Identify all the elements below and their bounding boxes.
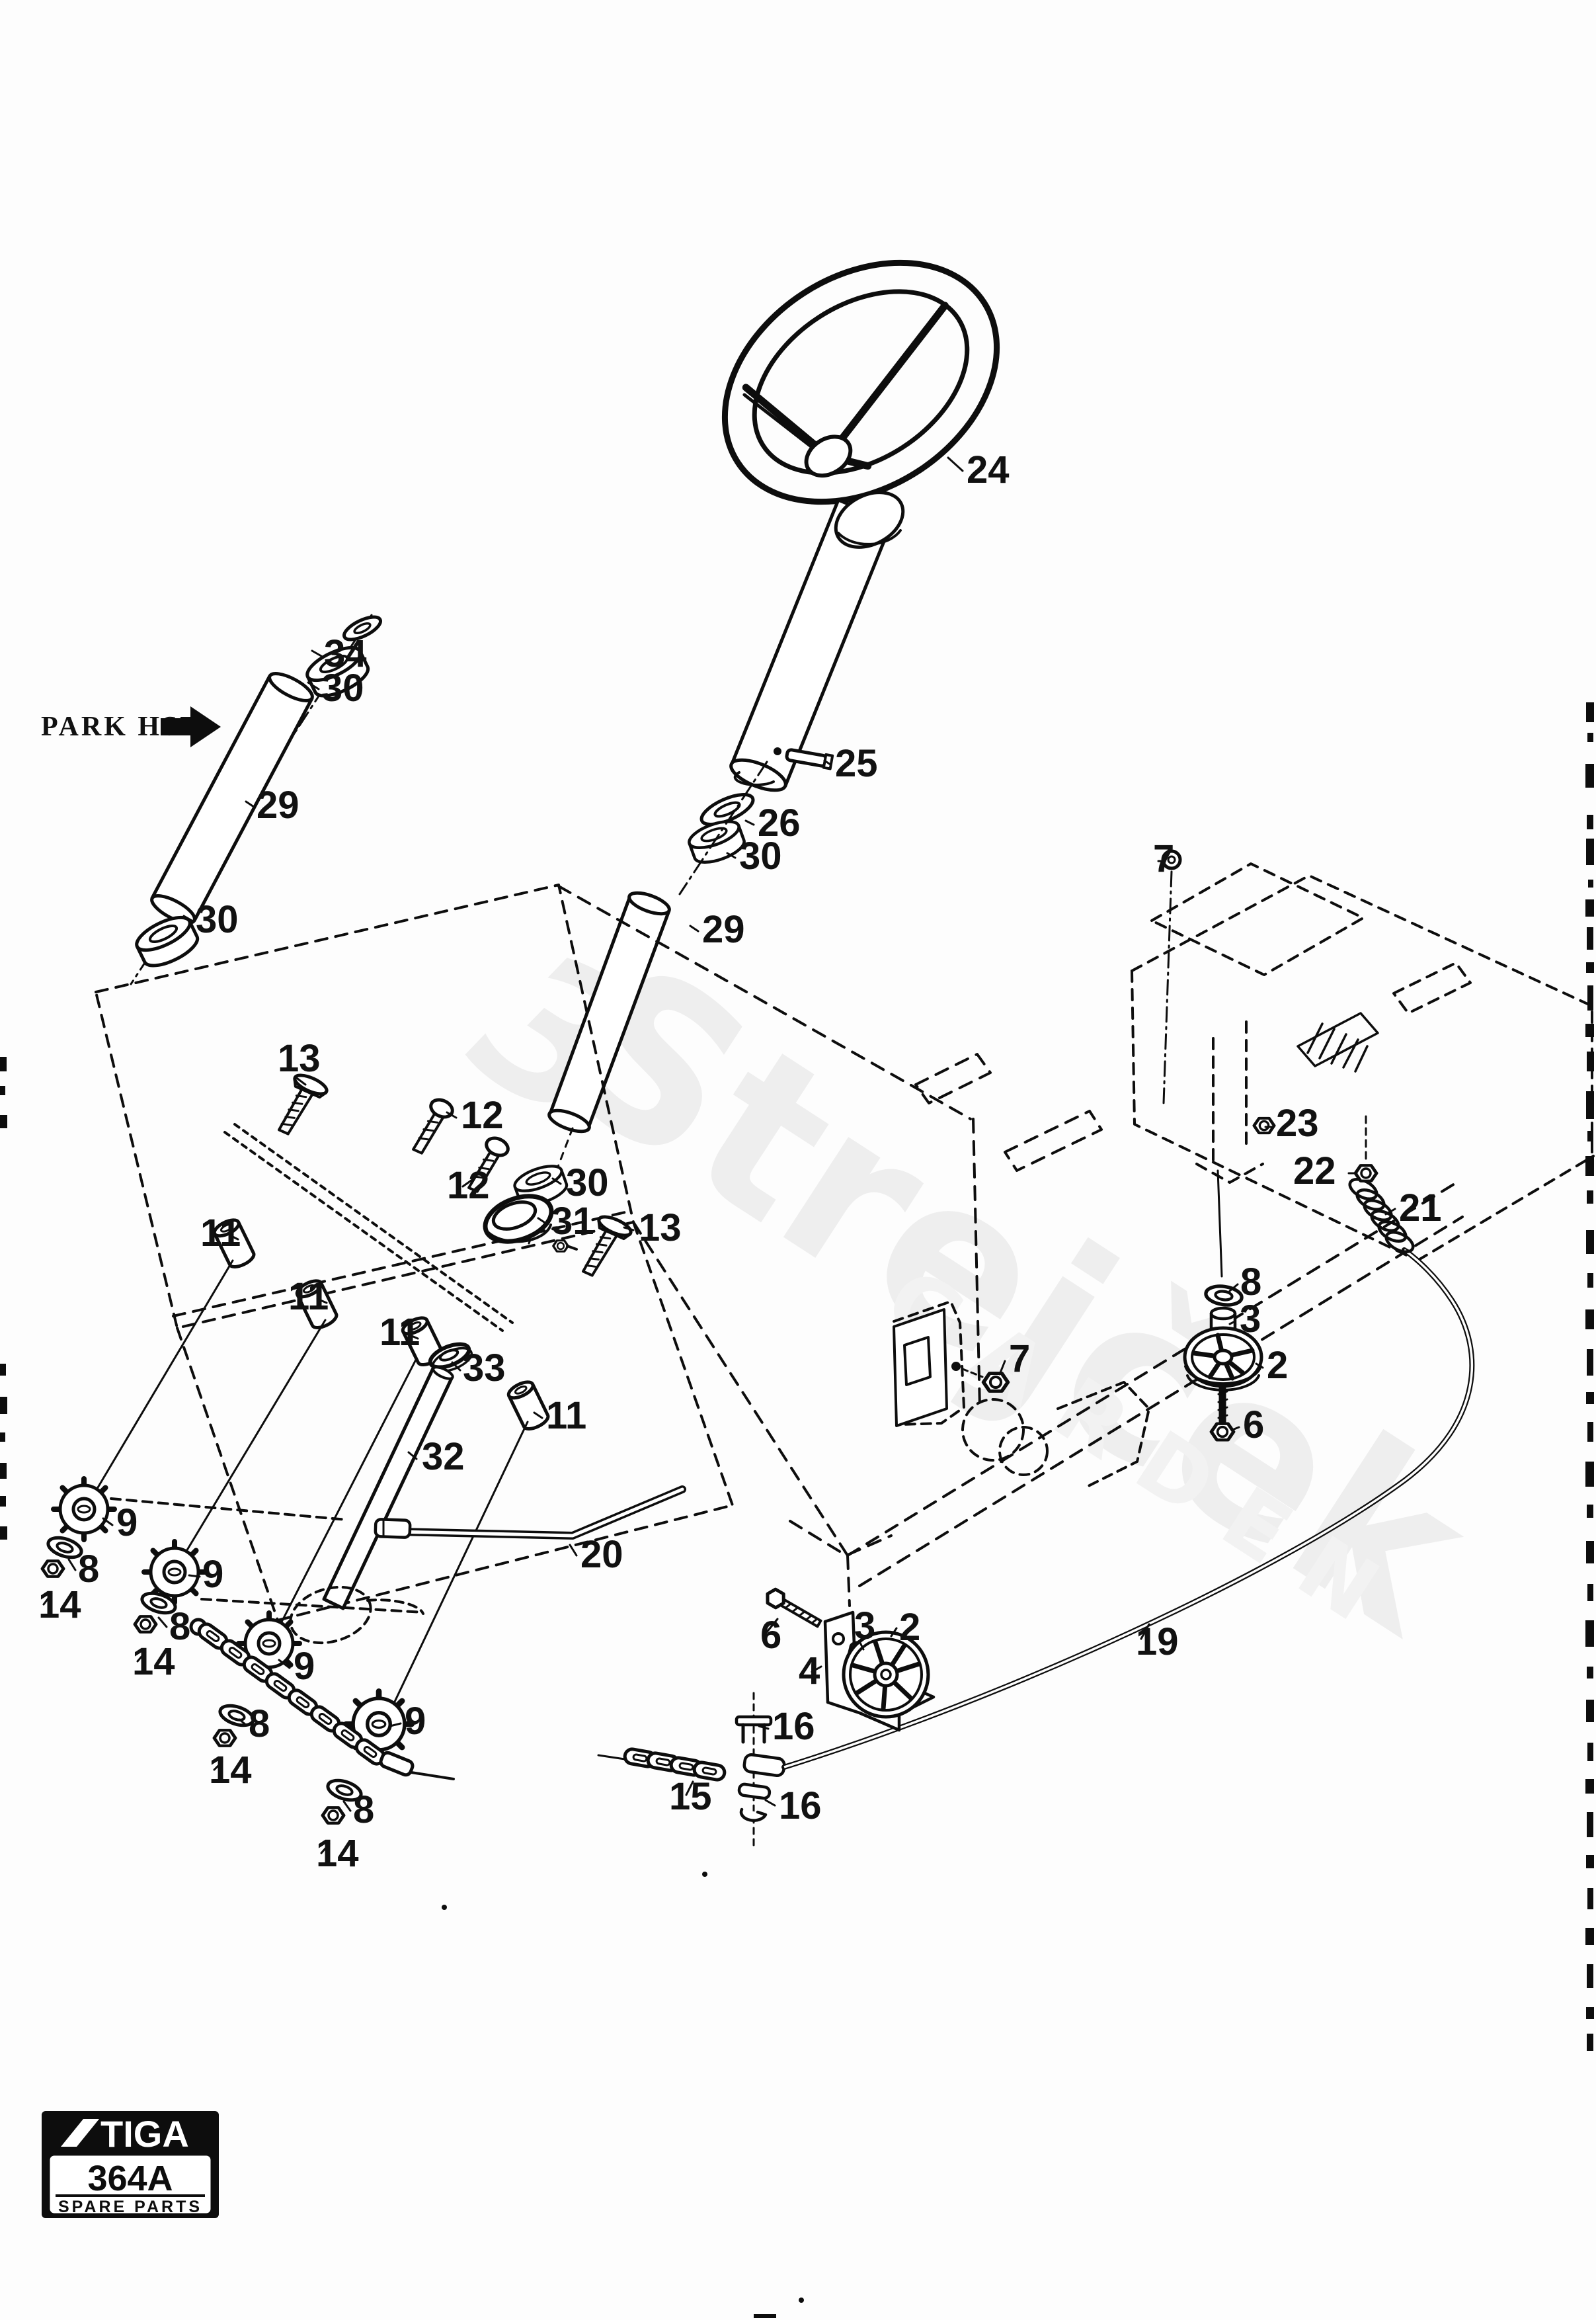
part-label-13: 13 — [639, 1206, 682, 1249]
part-label-12: 12 — [461, 1094, 504, 1137]
part-label-7: 7 — [1009, 1337, 1030, 1380]
part-label-8: 8 — [249, 1702, 270, 1745]
part-label-12: 12 — [447, 1164, 490, 1207]
part-label-31: 31 — [551, 1200, 594, 1243]
part-label-14: 14 — [38, 1583, 81, 1626]
part-label-23: 23 — [1276, 1102, 1319, 1145]
part-label-9: 9 — [294, 1645, 315, 1688]
part-label-24: 24 — [967, 448, 1010, 491]
part-label-9: 9 — [405, 1700, 426, 1743]
park-hst-note: PARK HST — [41, 706, 221, 747]
part-cable-adjuster — [743, 1754, 785, 1776]
part-screw-7-frame — [1163, 851, 1180, 1103]
part-nut-14-d — [323, 1807, 344, 1823]
logo-block: TIGA 364A SPARE PARTS — [42, 2111, 219, 2218]
part-label-9: 9 — [116, 1501, 138, 1544]
part-label-2: 2 — [1267, 1344, 1288, 1387]
part-label-29: 29 — [257, 784, 299, 827]
part-nut-14-b — [135, 1616, 156, 1632]
part-rod-32 — [324, 1365, 454, 1608]
logo-brand: TIGA — [100, 2113, 189, 2155]
part-label-7: 7 — [1153, 837, 1174, 880]
logo-model: 364A — [87, 2159, 173, 2198]
rear-frame-outline — [1132, 864, 1593, 1261]
part-label-8: 8 — [353, 1788, 374, 1831]
part-bearing-30-column — [686, 816, 748, 868]
part-nut-7-seat — [984, 1374, 1008, 1391]
part-nut-22 — [1355, 1165, 1377, 1181]
spare-parts-page: 3 Strejček GARDEN — [0, 0, 1596, 2320]
part-label-3: 3 — [854, 1604, 875, 1647]
part-label-16: 16 — [772, 1705, 815, 1748]
part-label-8: 8 — [78, 1548, 99, 1591]
part-label-4: 4 — [799, 1649, 820, 1692]
part-label-14: 14 — [316, 1832, 359, 1875]
part-sprocket-9-a — [54, 1479, 114, 1540]
part-label-11: 11 — [546, 1394, 586, 1437]
part-label-11: 11 — [200, 1212, 241, 1255]
part-label-11: 11 — [288, 1275, 329, 1318]
part-screw-12-a — [411, 1097, 455, 1157]
part-label-15: 15 — [669, 1775, 712, 1818]
part-clamp-16-bottom — [738, 1784, 770, 1821]
part-steering-shaft-upper — [727, 481, 912, 796]
part-label-33: 33 — [463, 1346, 506, 1389]
part-label-3: 3 — [1240, 1298, 1261, 1341]
part-label-6: 6 — [1243, 1403, 1264, 1446]
part-label-13: 13 — [278, 1037, 321, 1080]
part-label-16: 16 — [779, 1784, 822, 1827]
part-label-14: 14 — [209, 1749, 252, 1792]
part-label-30: 30 — [566, 1161, 609, 1204]
part-label-14: 14 — [132, 1640, 175, 1683]
part-label-20: 20 — [580, 1533, 623, 1576]
part-nut-23 — [1254, 1118, 1274, 1133]
part-label-2: 2 — [899, 1606, 920, 1649]
frame-hatched-slot — [1298, 1013, 1378, 1071]
part-bushing-11-d — [506, 1379, 551, 1432]
part-label-29: 29 — [702, 908, 745, 951]
part-label-32: 32 — [422, 1435, 465, 1478]
part-label-30: 30 — [739, 835, 782, 878]
part-label-30: 30 — [321, 667, 364, 710]
part-label-25: 25 — [835, 742, 878, 785]
part-label-9: 9 — [202, 1553, 223, 1596]
part-label-6: 6 — [760, 1614, 781, 1657]
part-label-22: 22 — [1293, 1149, 1336, 1192]
part-label-30: 30 — [196, 898, 239, 941]
part-nut-14-a — [42, 1561, 63, 1576]
part-label-11: 11 — [379, 1311, 420, 1354]
part-label-19: 19 — [1136, 1620, 1179, 1663]
part-label-21: 21 — [1399, 1186, 1442, 1229]
exploded-diagram: 3 Strejček GARDEN — [0, 0, 1596, 2320]
logo-subtitle: SPARE PARTS — [58, 2198, 202, 2216]
part-nut-14-c — [214, 1730, 235, 1745]
